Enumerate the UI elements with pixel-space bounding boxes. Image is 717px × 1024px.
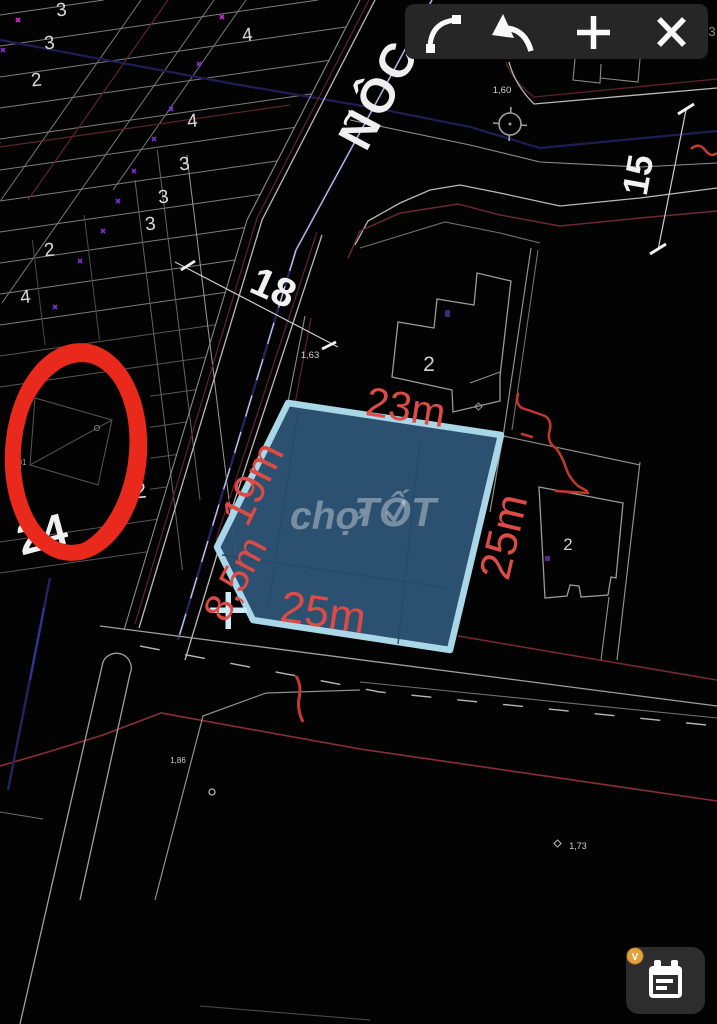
svg-text:2: 2 bbox=[43, 240, 56, 262]
svg-text:1,73: 1,73 bbox=[569, 841, 587, 851]
svg-text:2: 2 bbox=[563, 535, 572, 554]
svg-text:3: 3 bbox=[55, 0, 68, 22]
svg-text:3: 3 bbox=[157, 187, 170, 209]
svg-text:1,63: 1,63 bbox=[301, 350, 320, 361]
svg-text:15: 15 bbox=[614, 152, 661, 199]
svg-text:2: 2 bbox=[30, 70, 43, 92]
svg-text:3: 3 bbox=[708, 24, 715, 39]
svg-text:3: 3 bbox=[178, 154, 191, 176]
svg-text:2: 2 bbox=[423, 353, 435, 376]
svg-text:1,60: 1,60 bbox=[493, 85, 512, 96]
svg-text:V: V bbox=[632, 952, 639, 963]
svg-text:3: 3 bbox=[43, 33, 56, 55]
svg-text:3: 3 bbox=[144, 214, 157, 236]
svg-text:1,86: 1,86 bbox=[170, 756, 186, 765]
